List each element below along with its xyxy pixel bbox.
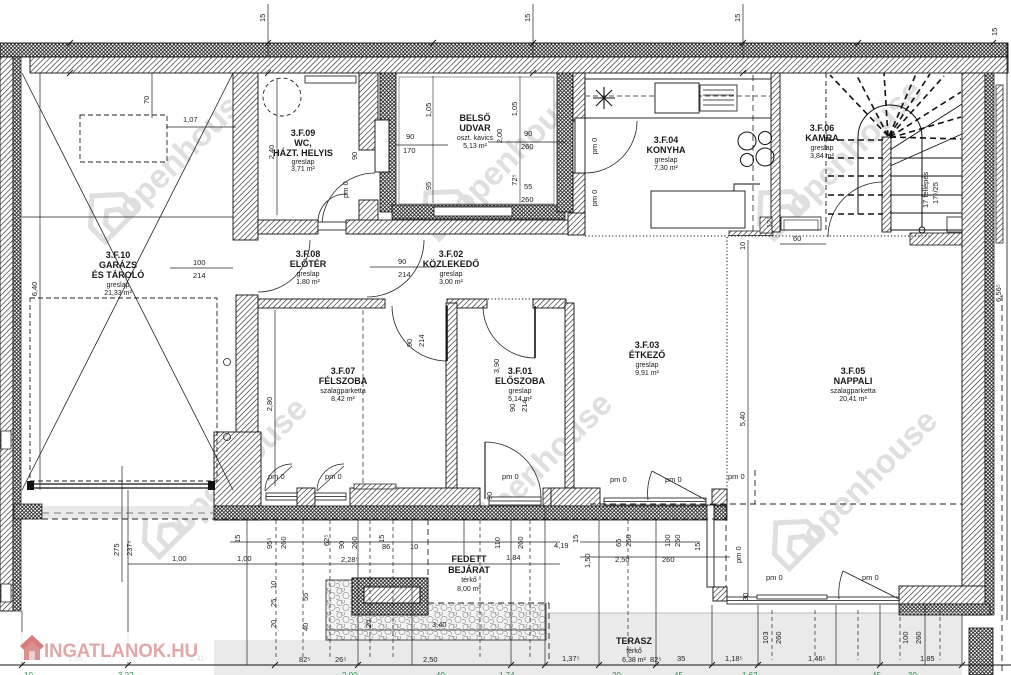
svg-text:90: 90 <box>406 132 414 141</box>
svg-text:21,33 m²: 21,33 m² <box>104 290 132 297</box>
svg-text:260: 260 <box>662 555 675 564</box>
svg-text:3,84 m²: 3,84 m² <box>810 153 834 160</box>
svg-text:40: 40 <box>301 623 310 631</box>
svg-text:5,40: 5,40 <box>738 412 747 427</box>
svg-text:2,50: 2,50 <box>423 655 438 664</box>
svg-text:GARÁZS: GARÁZS <box>99 260 137 270</box>
svg-text:15: 15 <box>990 28 999 36</box>
svg-text:3.F.07: 3.F.07 <box>331 366 356 376</box>
svg-text:pm 0: pm 0 <box>341 181 350 198</box>
svg-text:KÖZLEKEDŐ: KÖZLEKEDŐ <box>423 258 480 269</box>
svg-text:260: 260 <box>914 631 923 644</box>
svg-text:TERASZ: TERASZ <box>616 636 653 646</box>
svg-text:90: 90 <box>508 404 517 412</box>
svg-text:3.F.03: 3.F.03 <box>635 340 660 350</box>
svg-text:BEJÁRAT: BEJÁRAT <box>448 565 490 575</box>
svg-text:6,38 m²: 6,38 m² <box>622 657 646 664</box>
svg-text:90: 90 <box>485 492 494 500</box>
svg-text:30: 30 <box>741 593 750 601</box>
svg-text:3.F.09: 3.F.09 <box>291 128 316 138</box>
svg-text:20,41 m²: 20,41 m² <box>839 396 867 403</box>
svg-text:20: 20 <box>364 620 373 628</box>
svg-text:szalagparketta: szalagparketta <box>320 388 366 395</box>
svg-text:10: 10 <box>410 542 418 551</box>
svg-text:30: 30 <box>908 671 917 675</box>
svg-text:10: 10 <box>738 242 747 250</box>
svg-text:2,80: 2,80 <box>265 397 274 412</box>
svg-text:BELSŐ: BELSŐ <box>459 112 490 123</box>
svg-text:1,07: 1,07 <box>183 115 198 124</box>
svg-text:8,00 m²: 8,00 m² <box>457 586 481 593</box>
svg-text:95⁵: 95⁵ <box>265 538 274 549</box>
svg-text:6,56⁵: 6,56⁵ <box>994 284 1003 302</box>
svg-text:15: 15 <box>693 543 702 551</box>
svg-text:pm 0: pm 0 <box>502 472 519 481</box>
svg-text:2,00: 2,00 <box>495 129 504 144</box>
svg-text:90: 90 <box>350 152 359 160</box>
svg-text:greslap: greslap <box>509 388 532 395</box>
svg-text:1,46⁵: 1,46⁵ <box>808 654 826 663</box>
svg-text:FÉLSZOBA: FÉLSZOBA <box>319 376 368 386</box>
svg-text:100: 100 <box>193 258 206 267</box>
svg-text:pm 0: pm 0 <box>325 472 342 481</box>
svg-text:ÉS TÁROLÓ: ÉS TÁROLÓ <box>92 269 145 280</box>
svg-text:100: 100 <box>901 631 910 644</box>
svg-text:275: 275 <box>112 543 121 556</box>
svg-text:3.F.02: 3.F.02 <box>439 249 464 259</box>
svg-text:2,00: 2,00 <box>342 671 358 675</box>
svg-text:90: 90 <box>524 129 532 138</box>
svg-text:greslap: greslap <box>655 157 678 164</box>
svg-text:greslap: greslap <box>811 145 834 152</box>
svg-text:1,00: 1,00 <box>237 554 252 563</box>
svg-text:25: 25 <box>269 599 278 607</box>
svg-text:greslap: greslap <box>636 362 659 369</box>
svg-text:pm 0: pm 0 <box>590 190 599 207</box>
svg-text:ELŐSZOBA: ELŐSZOBA <box>495 375 546 386</box>
svg-text:greslap: greslap <box>440 271 463 278</box>
svg-text:15: 15 <box>733 14 742 22</box>
svg-text:1,85: 1,85 <box>920 654 935 663</box>
svg-text:95: 95 <box>424 182 433 190</box>
svg-text:3.F.06: 3.F.06 <box>810 123 835 133</box>
svg-text:3,22: 3,22 <box>118 671 134 675</box>
svg-text:82⁵: 82⁵ <box>299 655 310 664</box>
svg-text:greslap: greslap <box>107 282 130 289</box>
svg-text:1,05: 1,05 <box>424 103 433 118</box>
svg-text:15: 15 <box>523 14 532 22</box>
svg-text:214: 214 <box>417 334 426 347</box>
svg-text:10: 10 <box>269 581 278 589</box>
svg-text:20: 20 <box>612 671 621 675</box>
svg-text:pm 0: pm 0 <box>734 546 743 563</box>
svg-text:72⁵: 72⁵ <box>510 174 519 185</box>
svg-text:2,28⁵: 2,28⁵ <box>341 555 359 564</box>
svg-text:237⁵: 237⁵ <box>125 540 134 556</box>
svg-text:55: 55 <box>301 593 310 601</box>
svg-text:70: 70 <box>142 96 151 104</box>
svg-text:1,84: 1,84 <box>506 553 521 562</box>
svg-text:260: 260 <box>521 195 534 204</box>
svg-text:45: 45 <box>674 671 683 675</box>
svg-text:12⁵: 12⁵ <box>765 217 774 228</box>
svg-text:ELŐTÉR: ELŐTÉR <box>290 258 327 269</box>
svg-text:7,30 m²: 7,30 m² <box>654 165 678 172</box>
svg-text:86: 86 <box>382 542 390 551</box>
svg-text:1,62: 1,62 <box>742 671 758 675</box>
svg-text:3.F.08: 3.F.08 <box>296 249 321 259</box>
svg-text:pm 0: pm 0 <box>268 472 285 481</box>
svg-text:8,42 m²: 8,42 m² <box>331 396 355 403</box>
svg-text:260: 260 <box>774 631 783 644</box>
svg-text:260: 260 <box>521 142 534 151</box>
svg-text:1,80 m²: 1,80 m² <box>296 279 320 286</box>
svg-text:3,40: 3,40 <box>432 620 447 629</box>
svg-text:1,74: 1,74 <box>499 671 515 675</box>
svg-text:3.F.05: 3.F.05 <box>841 366 866 376</box>
svg-text:1,05: 1,05 <box>510 102 519 117</box>
svg-text:40: 40 <box>436 671 445 675</box>
svg-text:100: 100 <box>663 534 672 547</box>
svg-text:214: 214 <box>193 271 206 280</box>
svg-text:UDVAR: UDVAR <box>459 123 491 133</box>
svg-text:9,91 m²: 9,91 m² <box>635 370 659 377</box>
svg-text:90: 90 <box>398 257 406 266</box>
svg-text:17 fellépés: 17 fellépés <box>921 171 930 208</box>
svg-text:INGATLANOK.HU: INGATLANOK.HU <box>44 640 198 662</box>
svg-text:2,50: 2,50 <box>615 555 630 564</box>
svg-text:260: 260 <box>516 536 525 549</box>
svg-text:oszt. kavics: oszt. kavics <box>457 135 494 142</box>
svg-text:ÉTKEZŐ: ÉTKEZŐ <box>629 349 666 360</box>
svg-text:1,50: 1,50 <box>583 553 592 568</box>
svg-text:pm 0: pm 0 <box>862 573 879 582</box>
svg-text:15: 15 <box>571 535 580 543</box>
svg-text:170: 170 <box>403 146 416 155</box>
svg-text:szalagparketta: szalagparketta <box>830 388 876 395</box>
svg-text:pm 0: pm 0 <box>728 472 745 481</box>
svg-text:3.F.10: 3.F.10 <box>106 250 131 260</box>
svg-text:3,71 m²: 3,71 m² <box>291 166 315 173</box>
svg-text:pm 0: pm 0 <box>766 573 783 582</box>
svg-text:3.F.01: 3.F.01 <box>508 366 533 376</box>
svg-text:3,00 m²: 3,00 m² <box>439 279 463 286</box>
svg-text:260: 260 <box>624 534 633 547</box>
svg-text:NAPPALI: NAPPALI <box>834 376 873 386</box>
svg-text:26⁵: 26⁵ <box>335 655 346 664</box>
svg-text:260: 260 <box>279 536 288 549</box>
svg-text:FEDETT: FEDETT <box>452 554 488 564</box>
svg-text:3,90: 3,90 <box>492 359 501 374</box>
svg-text:6,40: 6,40 <box>30 282 39 297</box>
svg-text:térkő: térkő <box>626 648 642 655</box>
svg-text:greslap: greslap <box>297 271 320 278</box>
svg-text:90: 90 <box>405 339 414 347</box>
svg-text:55: 55 <box>524 182 532 191</box>
svg-text:65: 65 <box>614 539 623 547</box>
svg-text:1,00: 1,00 <box>172 554 187 563</box>
svg-text:KONYHA: KONYHA <box>646 145 686 155</box>
svg-text:5,13 m²: 5,13 m² <box>463 143 487 150</box>
svg-text:214: 214 <box>398 270 411 279</box>
svg-text:greslap: greslap <box>292 159 315 166</box>
svg-text:térkő: térkő <box>461 577 477 584</box>
svg-text:pm 0: pm 0 <box>665 475 682 484</box>
svg-text:60: 60 <box>793 234 801 243</box>
svg-text:3.F.04: 3.F.04 <box>654 135 679 145</box>
svg-text:pm 0: pm 0 <box>590 138 599 155</box>
svg-text:pm 0: pm 0 <box>610 475 627 484</box>
svg-text:45: 45 <box>872 671 881 675</box>
svg-text:10: 10 <box>24 671 33 675</box>
svg-text:110: 110 <box>493 537 502 549</box>
svg-text:KAMRA: KAMRA <box>805 133 839 143</box>
svg-text:20: 20 <box>269 620 278 628</box>
svg-text:35: 35 <box>677 654 685 663</box>
svg-text:WC,: WC, <box>294 138 312 148</box>
svg-text:5,14 m²: 5,14 m² <box>508 396 532 403</box>
svg-text:260: 260 <box>673 534 682 547</box>
svg-text:15: 15 <box>258 14 267 22</box>
svg-text:103: 103 <box>761 631 770 644</box>
svg-text:1,18⁵: 1,18⁵ <box>725 654 743 663</box>
svg-text:17⁵/25: 17⁵/25 <box>931 182 940 204</box>
svg-text:1,37⁵: 1,37⁵ <box>562 654 580 663</box>
svg-text:HÁZT. HELYIS: HÁZT. HELYIS <box>273 148 333 158</box>
